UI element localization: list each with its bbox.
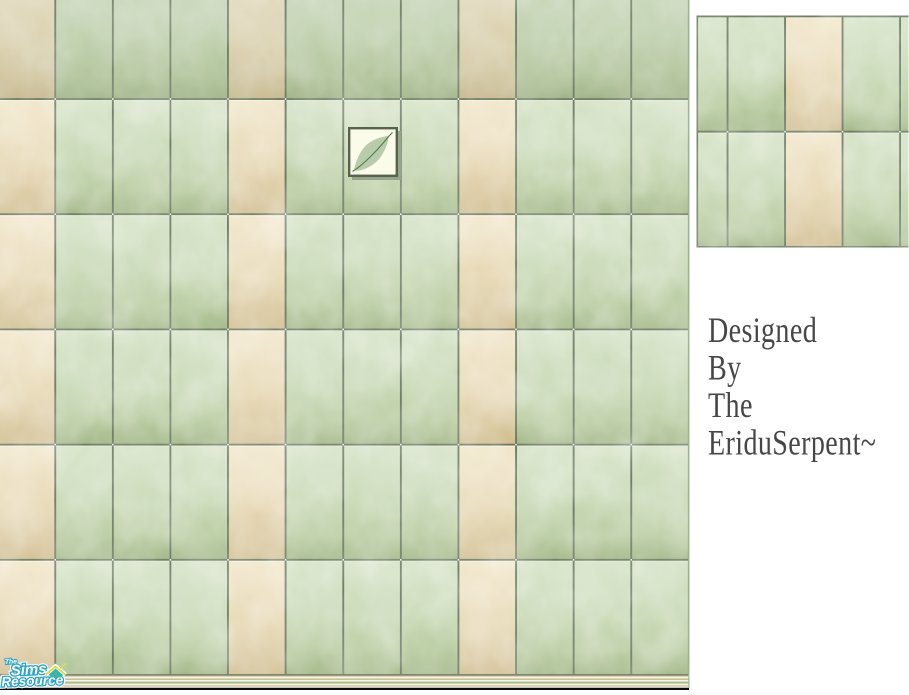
- svg-text:Designed: Designed: [708, 310, 817, 350]
- svg-text:The: The: [708, 385, 753, 425]
- svg-text:By: By: [708, 347, 742, 387]
- svg-text:EriduSerpent~: EriduSerpent~: [708, 422, 876, 462]
